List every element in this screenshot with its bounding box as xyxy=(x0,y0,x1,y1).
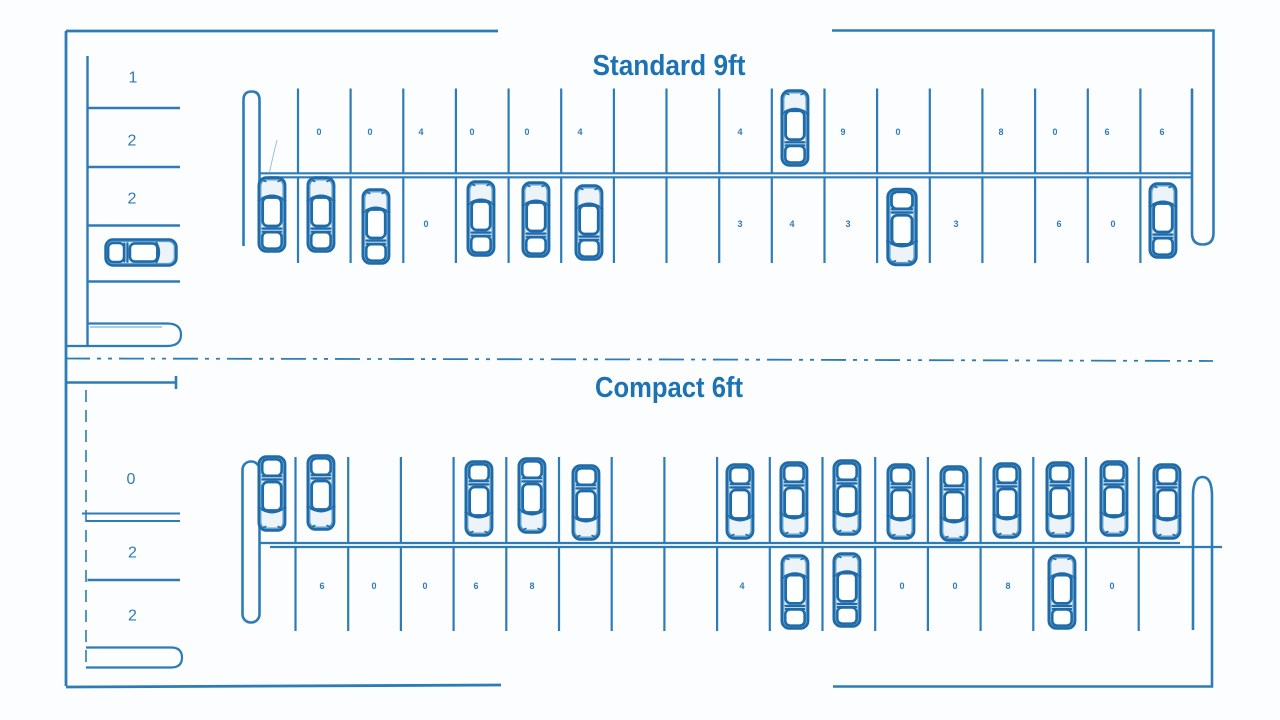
svg-text:2: 2 xyxy=(128,191,137,208)
svg-text:0: 0 xyxy=(469,127,474,137)
svg-text:0: 0 xyxy=(1110,219,1115,229)
svg-text:4: 4 xyxy=(577,127,582,137)
svg-text:4: 4 xyxy=(739,581,744,591)
svg-text:0: 0 xyxy=(367,127,372,137)
svg-text:0: 0 xyxy=(422,581,427,591)
svg-text:3: 3 xyxy=(953,219,958,229)
svg-text:6: 6 xyxy=(1056,219,1061,229)
svg-text:0: 0 xyxy=(524,127,529,137)
svg-text:0: 0 xyxy=(1109,581,1114,591)
svg-text:0: 0 xyxy=(895,127,900,137)
svg-text:0: 0 xyxy=(423,219,428,229)
svg-text:3: 3 xyxy=(737,219,742,229)
svg-text:6: 6 xyxy=(1159,127,1164,137)
svg-text:Compact 6ft: Compact 6ft xyxy=(595,372,743,404)
svg-text:6: 6 xyxy=(473,581,478,591)
svg-text:0: 0 xyxy=(1052,127,1057,137)
svg-text:4: 4 xyxy=(789,219,794,229)
svg-text:6: 6 xyxy=(1104,127,1109,137)
svg-text:0: 0 xyxy=(899,581,904,591)
svg-text:8: 8 xyxy=(1005,581,1010,591)
svg-text:1: 1 xyxy=(129,70,138,87)
svg-text:9: 9 xyxy=(840,127,845,137)
svg-text:2: 2 xyxy=(128,133,137,150)
svg-text:8: 8 xyxy=(529,581,534,591)
svg-text:6: 6 xyxy=(319,581,324,591)
svg-text:2: 2 xyxy=(128,545,137,562)
svg-text:8: 8 xyxy=(998,127,1003,137)
svg-text:3: 3 xyxy=(845,219,850,229)
svg-text:0: 0 xyxy=(316,127,321,137)
svg-text:0: 0 xyxy=(127,471,136,488)
svg-text:2: 2 xyxy=(128,608,137,625)
svg-text:4: 4 xyxy=(418,127,423,137)
svg-text:4: 4 xyxy=(737,127,742,137)
svg-text:0: 0 xyxy=(952,581,957,591)
svg-text:0: 0 xyxy=(371,581,376,591)
svg-text:Standard 9ft: Standard 9ft xyxy=(593,50,746,82)
